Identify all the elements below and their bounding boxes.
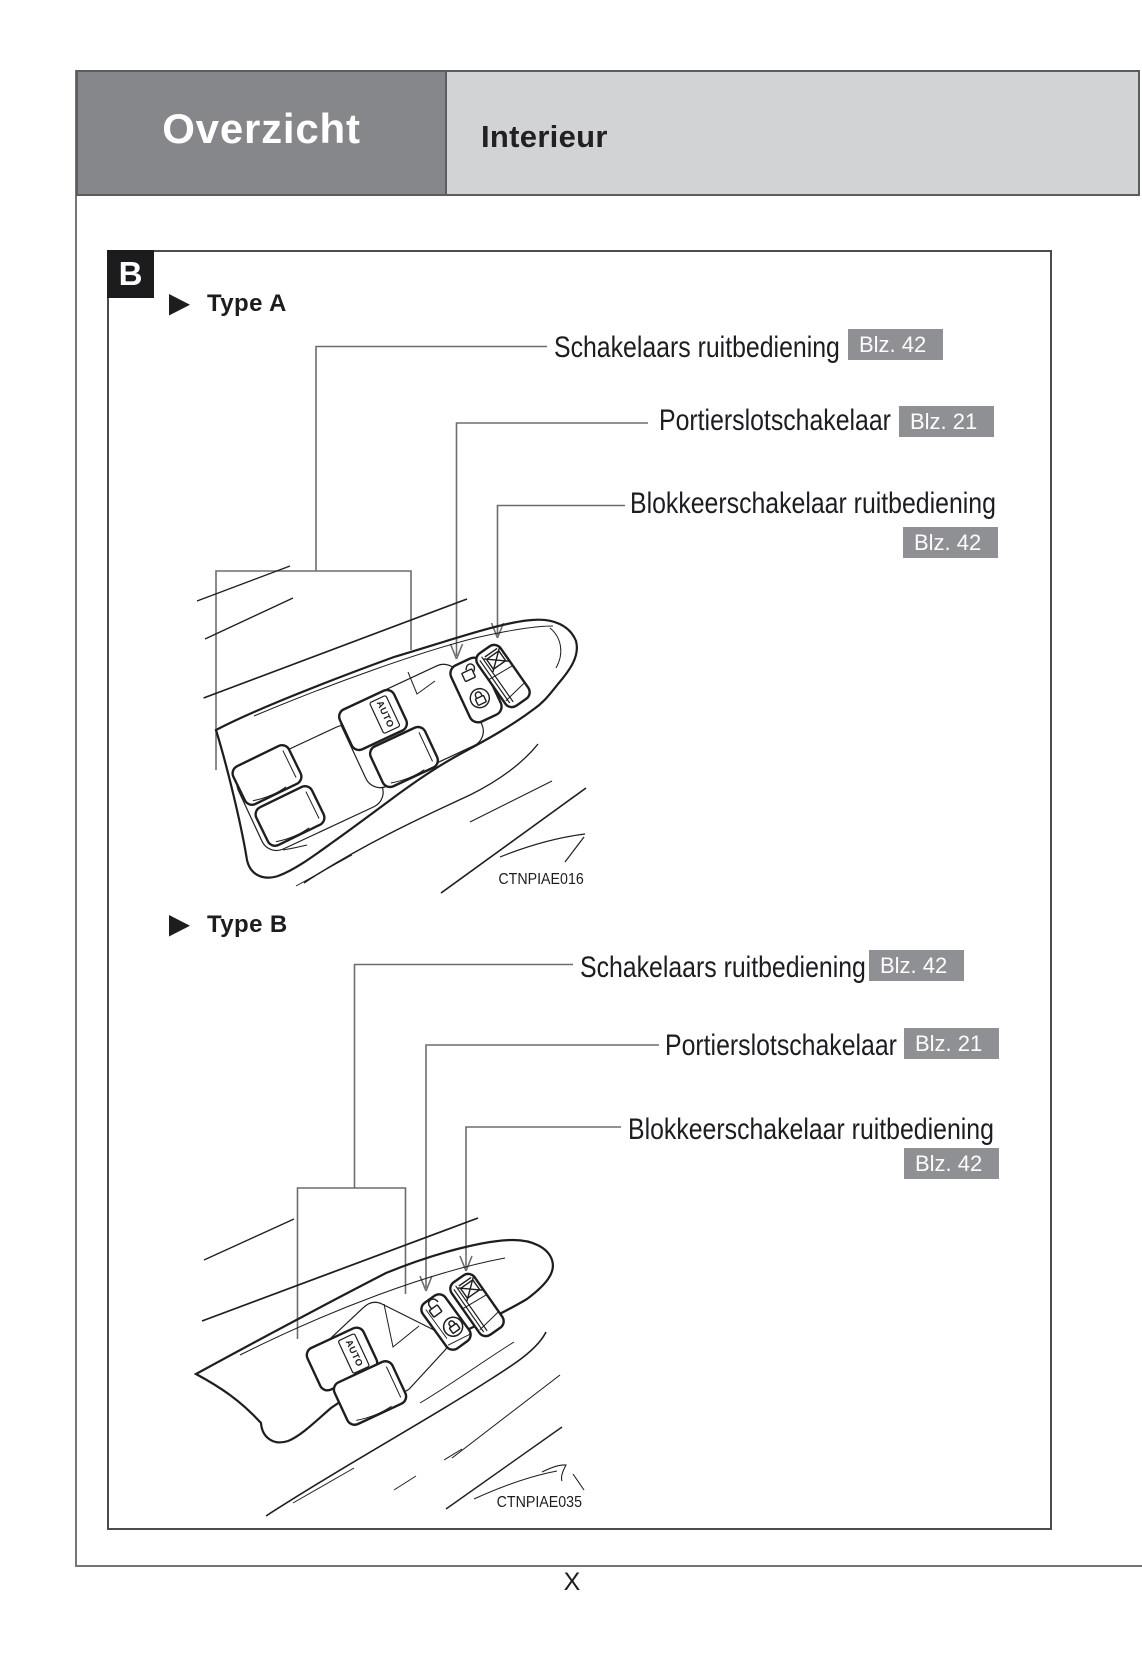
- svg-text:CTNPIAE016: CTNPIAE016: [498, 870, 583, 888]
- svg-text:CTNPIAE035: CTNPIAE035: [497, 1493, 582, 1511]
